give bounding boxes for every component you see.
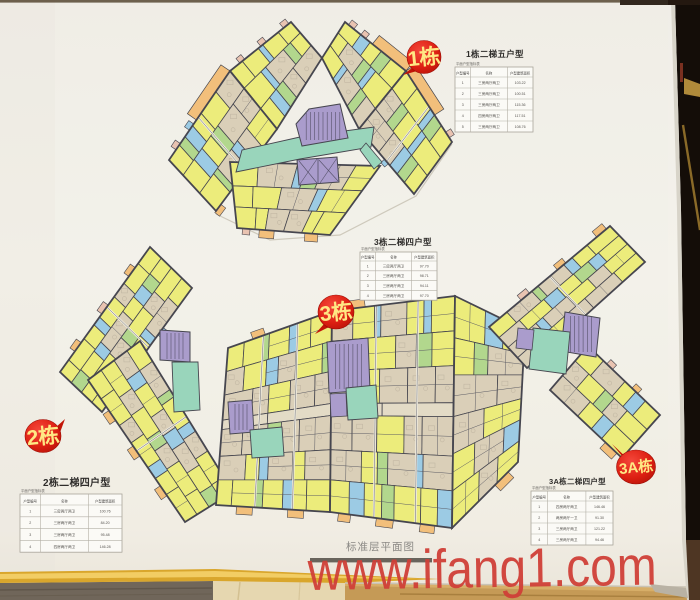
svg-text:三房两厅两卫: 三房两厅两卫 <box>478 102 500 107</box>
svg-text:1: 1 <box>29 509 31 513</box>
svg-text:4: 4 <box>29 545 31 549</box>
svg-text:3: 3 <box>462 103 464 107</box>
svg-text:www.ifang1.com: www.ifang1.com <box>306 535 657 600</box>
svg-text:1: 1 <box>367 264 369 268</box>
svg-text:名称: 名称 <box>390 255 397 260</box>
svg-text:户型建筑面积: 户型建筑面积 <box>589 495 610 500</box>
svg-text:户型编号: 户型编号 <box>23 499 37 504</box>
svg-text:1: 1 <box>462 81 464 85</box>
svg-text:三房两厅两卫: 三房两厅两卫 <box>54 532 76 537</box>
svg-text:三房两厅两卫: 三房两厅两卫 <box>478 80 500 85</box>
svg-text:91.30: 91.30 <box>595 516 604 520</box>
svg-text:3A栋: 3A栋 <box>618 457 654 478</box>
svg-text:3: 3 <box>29 533 31 537</box>
svg-text:97.70: 97.70 <box>420 294 429 298</box>
svg-text:名称: 名称 <box>486 71 493 76</box>
svg-text:户型编号: 户型编号 <box>361 255 375 260</box>
svg-text:98.71: 98.71 <box>420 274 429 278</box>
svg-text:3A栋二梯四户型: 3A栋二梯四户型 <box>549 476 606 486</box>
svg-text:平面户型指标表: 平面户型指标表 <box>21 488 45 493</box>
svg-text:四房两厅两卫: 四房两厅两卫 <box>54 544 76 549</box>
svg-text:三房两厅两卫: 三房两厅两卫 <box>383 283 405 288</box>
svg-text:户型建筑面积: 户型建筑面积 <box>95 499 116 504</box>
svg-text:2: 2 <box>538 516 540 520</box>
svg-text:三房两厅两卫: 三房两厅两卫 <box>383 273 405 278</box>
svg-text:两房两厅一卫: 两房两厅一卫 <box>556 515 578 520</box>
svg-text:平面户型指标表: 平面户型指标表 <box>456 61 480 66</box>
svg-text:3: 3 <box>367 284 369 288</box>
svg-text:1栋: 1栋 <box>407 44 442 71</box>
svg-text:1: 1 <box>538 505 540 509</box>
svg-text:户型建筑面积: 户型建筑面积 <box>414 255 435 260</box>
svg-text:103.22: 103.22 <box>515 81 526 85</box>
svg-text:户型建筑面积: 户型建筑面积 <box>510 71 531 76</box>
svg-text:117.51: 117.51 <box>515 114 526 118</box>
svg-text:三房两厅两卫: 三房两厅两卫 <box>478 91 500 96</box>
svg-text:三房两厅两卫: 三房两厅两卫 <box>556 526 578 531</box>
svg-text:平面户型指标表: 平面户型指标表 <box>532 485 556 490</box>
svg-text:84.20: 84.20 <box>101 521 110 525</box>
svg-text:2栋: 2栋 <box>26 423 61 450</box>
svg-text:2: 2 <box>462 92 464 96</box>
svg-text:三房两厅两卫: 三房两厅两卫 <box>383 263 405 268</box>
svg-text:三房两厅两卫: 三房两厅两卫 <box>54 508 76 513</box>
svg-text:2栋二梯四户型: 2栋二梯四户型 <box>43 476 111 489</box>
svg-text:4: 4 <box>462 114 464 118</box>
svg-text:95.48: 95.48 <box>101 533 110 537</box>
svg-text:户型编号: 户型编号 <box>456 71 470 76</box>
svg-text:5: 5 <box>462 125 464 129</box>
svg-text:三房两厅两卫: 三房两厅两卫 <box>478 124 500 129</box>
svg-text:97.70: 97.70 <box>420 264 429 268</box>
svg-text:121.22: 121.22 <box>594 527 605 531</box>
svg-text:2: 2 <box>29 521 31 525</box>
svg-text:户型编号: 户型编号 <box>532 495 546 500</box>
svg-text:94.11: 94.11 <box>420 284 429 288</box>
svg-text:2: 2 <box>367 274 369 278</box>
svg-text:名称: 名称 <box>61 499 68 504</box>
svg-text:3栋二梯四户型: 3栋二梯四户型 <box>374 237 432 247</box>
svg-text:三房两厅两卫: 三房两厅两卫 <box>54 520 76 525</box>
svg-text:146.28: 146.28 <box>100 545 111 549</box>
svg-text:100.51: 100.51 <box>515 92 526 96</box>
svg-text:平面户型指标表: 平面户型指标表 <box>361 246 385 251</box>
svg-text:四房两厅两卫: 四房两厅两卫 <box>478 113 500 118</box>
svg-text:四房两厅两卫: 四房两厅两卫 <box>556 504 578 509</box>
svg-text:3: 3 <box>538 527 540 531</box>
svg-text:4: 4 <box>367 294 369 298</box>
svg-text:115.36: 115.36 <box>515 103 526 107</box>
svg-text:100.76: 100.76 <box>100 509 111 513</box>
svg-text:3栋: 3栋 <box>319 299 354 326</box>
svg-text:1栋二梯五户型: 1栋二梯五户型 <box>466 49 524 59</box>
svg-text:三房两厅两卫: 三房两厅两卫 <box>383 293 405 298</box>
svg-text:108.76: 108.76 <box>515 125 526 129</box>
svg-text:146.46: 146.46 <box>594 505 605 509</box>
svg-text:名称: 名称 <box>563 495 570 500</box>
